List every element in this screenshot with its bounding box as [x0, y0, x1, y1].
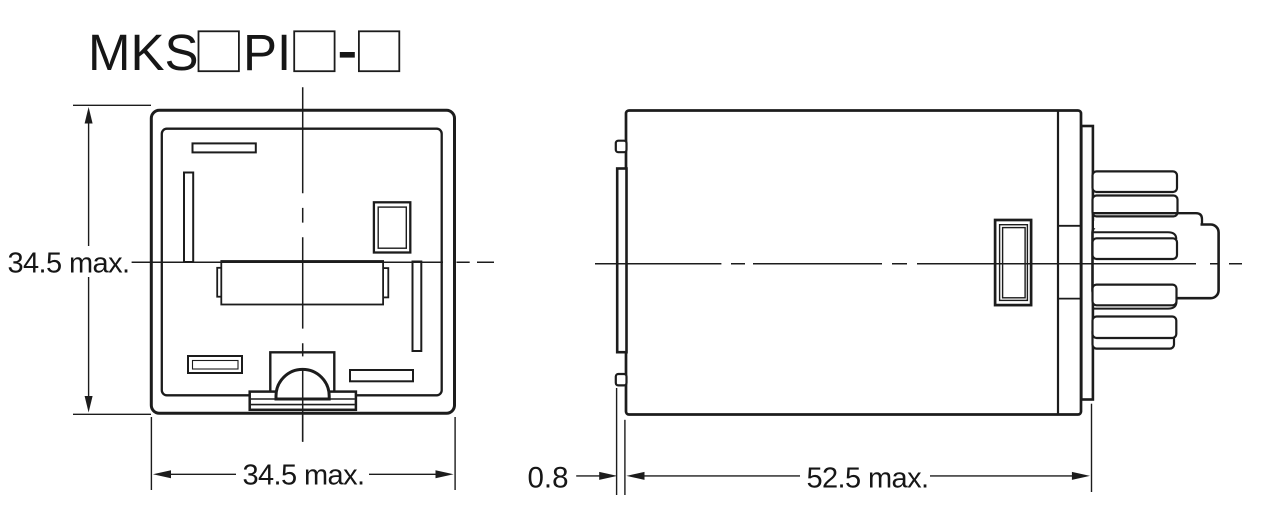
- svg-text:0.8: 0.8: [528, 462, 569, 495]
- svg-text:52.5 max.: 52.5 max.: [807, 462, 929, 494]
- svg-text:MKS: MKS: [88, 24, 199, 81]
- svg-text:PI: PI: [243, 24, 291, 81]
- svg-text:34.5 max.: 34.5 max.: [8, 248, 130, 280]
- svg-text:34.5 max.: 34.5 max.: [243, 459, 365, 491]
